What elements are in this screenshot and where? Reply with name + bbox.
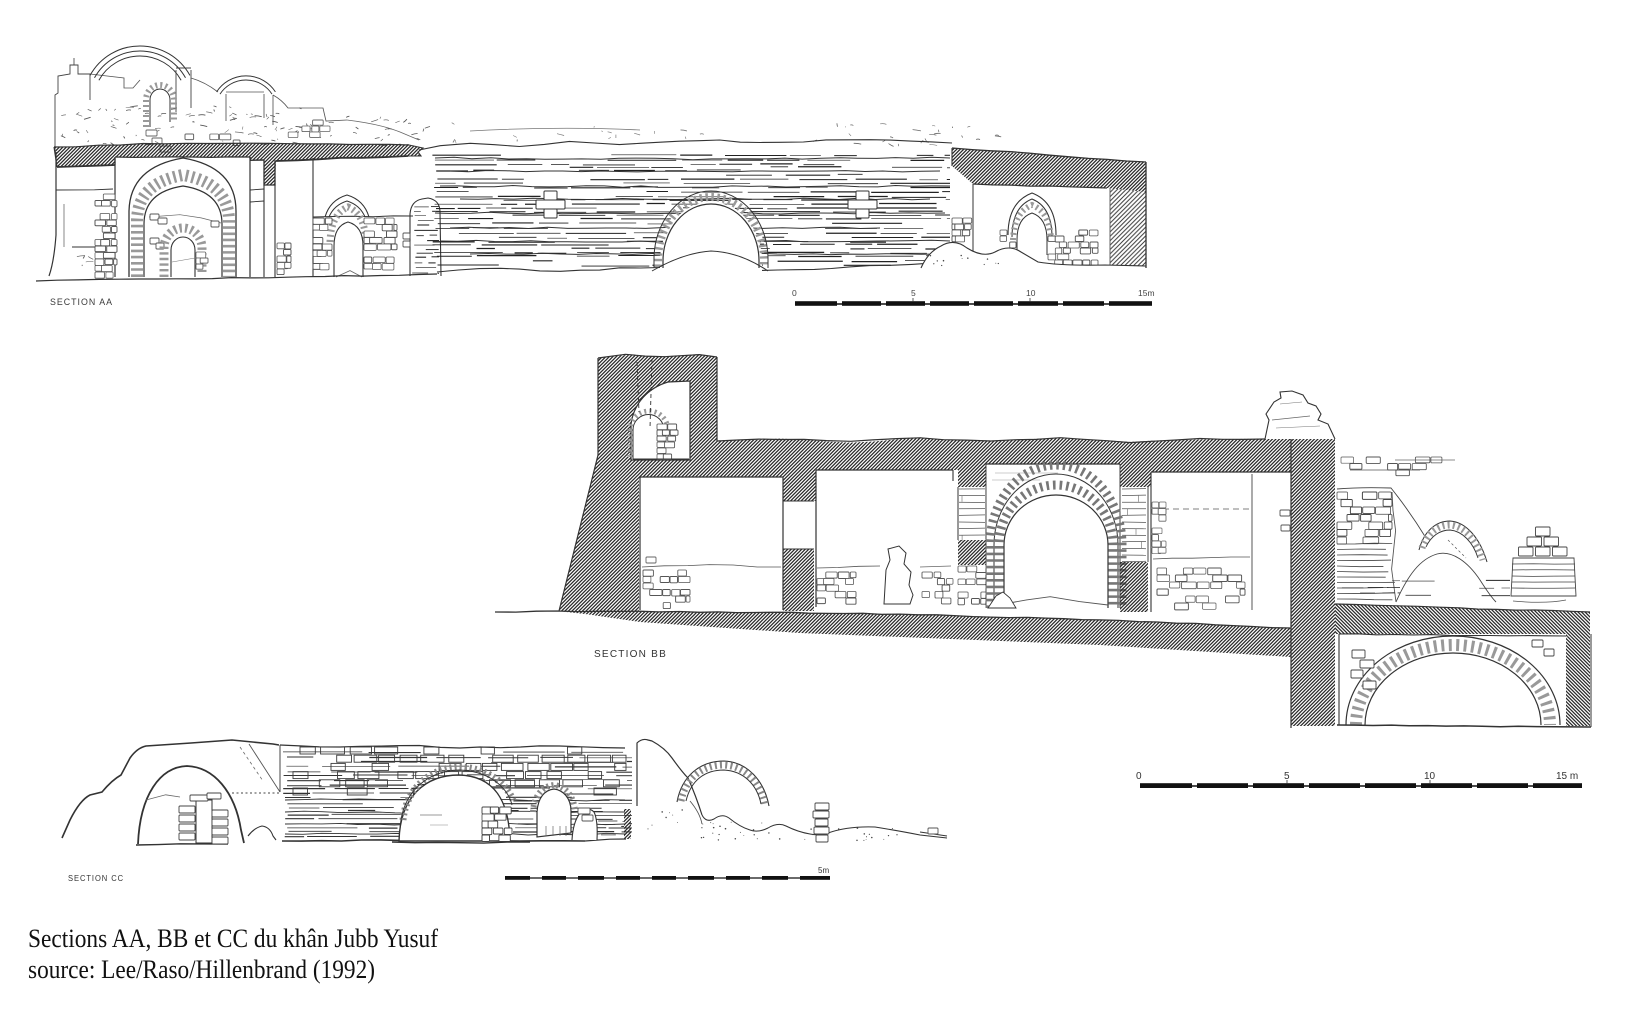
svg-text:SECTION AA: SECTION AA (50, 297, 113, 307)
svg-text:Sections AA, BB et CC du khân: Sections AA, BB et CC du khân Jubb Yusuf (28, 924, 438, 953)
svg-text:source: Lee/Raso/Hillenbrand (: source: Lee/Raso/Hillenbrand (1992) (28, 955, 375, 984)
svg-text:15 m: 15 m (1556, 771, 1578, 782)
svg-text:SECTION CC: SECTION CC (68, 874, 124, 883)
svg-text:0: 0 (792, 288, 797, 298)
svg-text:SECTION BB: SECTION BB (594, 649, 667, 660)
svg-text:15m: 15m (1138, 288, 1155, 298)
svg-text:5m: 5m (818, 866, 829, 875)
svg-text:10: 10 (1026, 288, 1036, 298)
svg-text:0: 0 (1136, 771, 1142, 782)
svg-text:5: 5 (911, 288, 916, 298)
